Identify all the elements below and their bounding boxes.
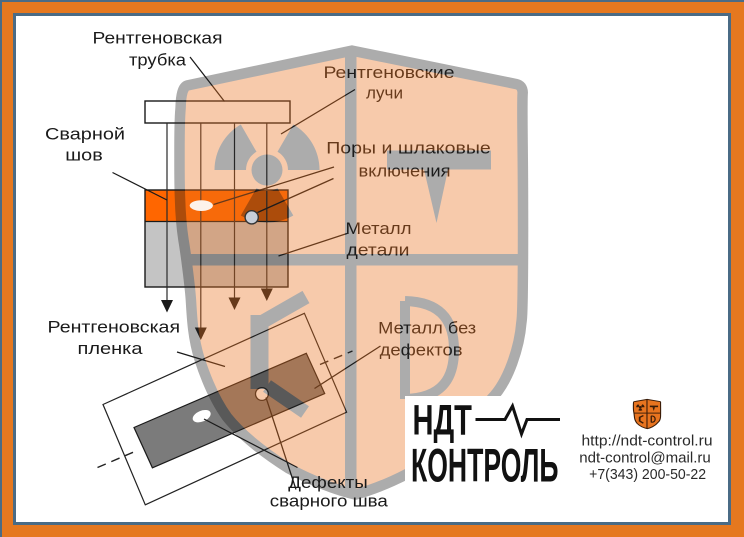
svg-text:сварного шва: сварного шва [270,492,389,511]
svg-text:ndt-control@mail.ru: ndt-control@mail.ru [579,450,711,466]
svg-text:Рентгеновская: Рентгеновская [48,318,181,337]
svg-text:КОНТРОЛЬ: КОНТРОЛЬ [411,440,559,493]
svg-text:Сварной: Сварной [45,125,125,144]
svg-text:шов: шов [65,146,103,165]
svg-text:пленка: пленка [78,339,144,358]
svg-text:Рентгеновская: Рентгеновская [93,28,223,47]
svg-text:Дефекты: Дефекты [288,473,368,492]
svg-text:трубка: трубка [129,51,187,70]
svg-text:+7(343) 200-50-22: +7(343) 200-50-22 [589,467,706,483]
svg-text:НДТ: НДТ [413,396,472,444]
svg-text:http://ndt-control.ru: http://ndt-control.ru [582,434,713,450]
